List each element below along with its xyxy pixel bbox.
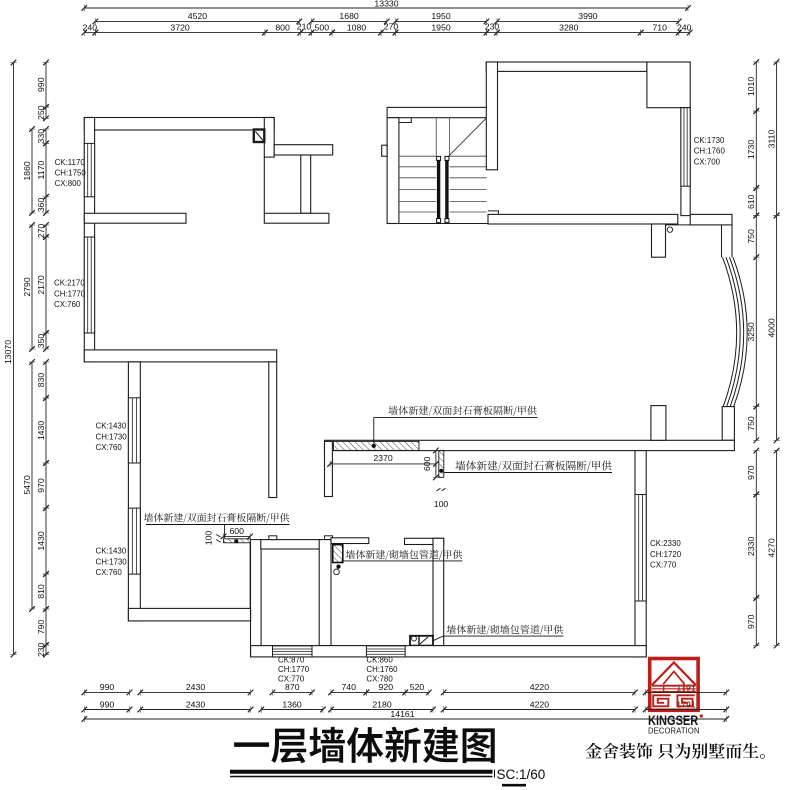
svg-text:1170: 1170 xyxy=(36,161,46,180)
svg-text:500: 500 xyxy=(315,22,330,32)
svg-text:1010: 1010 xyxy=(746,77,756,96)
svg-text:270: 270 xyxy=(384,22,399,32)
svg-text:1080: 1080 xyxy=(347,22,366,32)
svg-text:2430: 2430 xyxy=(186,699,205,709)
svg-text:1730: 1730 xyxy=(746,140,756,159)
svg-text:SC:1/60: SC:1/60 xyxy=(497,767,546,782)
svg-text:2170: 2170 xyxy=(36,275,46,294)
svg-text:610: 610 xyxy=(746,194,756,209)
svg-text:100: 100 xyxy=(434,499,449,509)
svg-text:970: 970 xyxy=(36,478,46,493)
svg-text:240: 240 xyxy=(677,22,692,32)
svg-text:CK:1170: CK:1170 xyxy=(55,158,86,167)
svg-text:CH:1760: CH:1760 xyxy=(366,665,398,674)
svg-text:830: 830 xyxy=(36,373,46,388)
svg-text:2370: 2370 xyxy=(373,453,392,463)
svg-text:CK:2330: CK:2330 xyxy=(650,539,681,548)
svg-text:250: 250 xyxy=(36,105,46,120)
svg-text:4000: 4000 xyxy=(766,318,776,337)
svg-text:CH:1760: CH:1760 xyxy=(694,147,726,156)
svg-text:520: 520 xyxy=(410,682,425,692)
svg-text:14161: 14161 xyxy=(390,709,414,719)
svg-text:3720: 3720 xyxy=(170,22,189,32)
svg-text:990: 990 xyxy=(100,682,115,692)
svg-text:1430: 1430 xyxy=(36,531,46,550)
svg-text:810: 810 xyxy=(36,584,46,599)
svg-text:800: 800 xyxy=(275,22,290,32)
svg-text:1430: 1430 xyxy=(36,421,46,440)
svg-text:4220: 4220 xyxy=(530,699,549,709)
svg-text:1860: 1860 xyxy=(22,161,32,180)
svg-text:CX:760: CX:760 xyxy=(96,568,123,577)
svg-text:CK:860: CK:860 xyxy=(366,656,393,665)
svg-text:13070: 13070 xyxy=(3,340,13,364)
svg-text:CK:1430: CK:1430 xyxy=(96,547,127,556)
svg-text:CX:770: CX:770 xyxy=(650,560,677,569)
svg-text:CH:1730: CH:1730 xyxy=(96,432,128,441)
svg-text:2430: 2430 xyxy=(186,682,205,692)
svg-text:3280: 3280 xyxy=(559,22,578,32)
svg-text:1950: 1950 xyxy=(431,11,450,21)
svg-text:210: 210 xyxy=(297,22,312,32)
svg-text:CH:1750: CH:1750 xyxy=(55,168,87,177)
svg-text:2180: 2180 xyxy=(372,699,391,709)
svg-text:750: 750 xyxy=(746,416,756,431)
svg-text:230: 230 xyxy=(485,22,500,32)
svg-text:1680: 1680 xyxy=(339,11,358,21)
svg-text:330: 330 xyxy=(36,129,46,144)
svg-text:970: 970 xyxy=(746,465,756,480)
svg-text:970: 970 xyxy=(746,614,756,629)
svg-text:CX:700: CX:700 xyxy=(694,157,721,166)
svg-text:4220: 4220 xyxy=(530,682,549,692)
svg-text:CK:870: CK:870 xyxy=(278,656,305,665)
svg-text:CX:760: CX:760 xyxy=(96,443,123,452)
svg-text:990: 990 xyxy=(100,699,115,709)
svg-text:3110: 3110 xyxy=(766,129,776,148)
svg-text:920: 920 xyxy=(379,682,394,692)
svg-text:CK:1430: CK:1430 xyxy=(96,422,127,431)
svg-text:CK:1730: CK:1730 xyxy=(694,136,725,145)
svg-text:DECORATION: DECORATION xyxy=(648,726,700,736)
svg-text:710: 710 xyxy=(652,22,667,32)
svg-text:1791: 1791 xyxy=(676,682,695,692)
svg-text:230: 230 xyxy=(36,642,46,657)
svg-text:2790: 2790 xyxy=(22,277,32,296)
svg-text:5470: 5470 xyxy=(22,475,32,494)
svg-text:1360: 1360 xyxy=(282,699,301,709)
svg-text:CH:1770: CH:1770 xyxy=(54,289,86,298)
svg-text:CX:760: CX:760 xyxy=(54,300,81,309)
svg-text:350: 350 xyxy=(36,334,46,349)
svg-text:750: 750 xyxy=(746,229,756,244)
svg-text:CH:1730: CH:1730 xyxy=(96,557,128,566)
svg-text:990: 990 xyxy=(36,77,46,92)
svg-text:CH:1720: CH:1720 xyxy=(650,550,682,559)
svg-text:600: 600 xyxy=(422,456,432,471)
svg-text:1950: 1950 xyxy=(431,22,450,32)
svg-text:870: 870 xyxy=(285,682,300,692)
svg-text:CX:800: CX:800 xyxy=(55,179,82,188)
svg-text:CK:2170: CK:2170 xyxy=(54,279,85,288)
svg-text:2330: 2330 xyxy=(746,536,756,555)
svg-text:4520: 4520 xyxy=(188,11,207,21)
svg-text:100: 100 xyxy=(204,531,214,546)
svg-text:13330: 13330 xyxy=(374,0,398,9)
svg-text:740: 740 xyxy=(341,682,356,692)
svg-text:CH:1770: CH:1770 xyxy=(278,665,310,674)
svg-text:790: 790 xyxy=(36,620,46,635)
svg-text:240: 240 xyxy=(83,22,98,32)
svg-text:270: 270 xyxy=(36,224,46,239)
svg-text:360: 360 xyxy=(36,197,46,212)
svg-text:4270: 4270 xyxy=(766,538,776,557)
svg-text:3990: 3990 xyxy=(578,11,597,21)
svg-text:600: 600 xyxy=(229,526,244,536)
